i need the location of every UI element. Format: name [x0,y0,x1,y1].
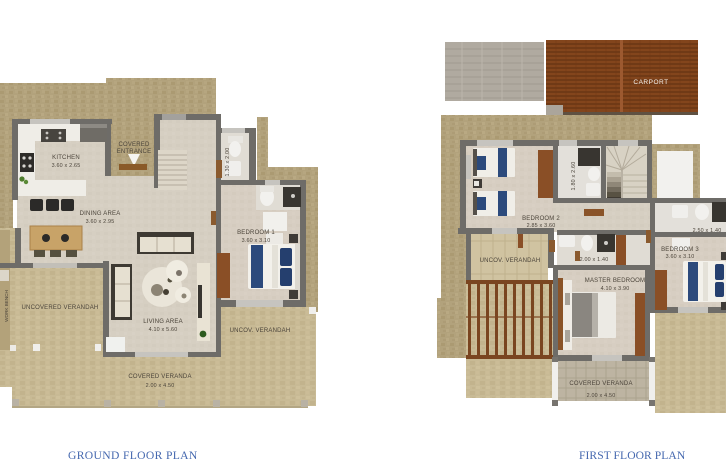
svg-text:3.60 x 3.10: 3.60 x 3.10 [242,238,271,244]
svg-text:1.30 x 2.00: 1.30 x 2.00 [225,148,231,177]
svg-text:COVERED: COVERED [118,142,150,148]
svg-text:2.50 x 1.40: 2.50 x 1.40 [693,228,722,234]
svg-text:2.00 x 4.50: 2.00 x 4.50 [146,383,175,389]
svg-text:LIVING AREA: LIVING AREA [143,319,183,325]
svg-text:COVERED VERANDA: COVERED VERANDA [128,374,191,380]
svg-text:COVERED VERANDA: COVERED VERANDA [569,381,632,387]
svg-text:2.00 x 4.50: 2.00 x 4.50 [587,393,616,399]
svg-text:BEDROOM 1: BEDROOM 1 [237,230,275,236]
svg-text:UNCOVERED VERANDAH: UNCOVERED VERANDAH [22,305,99,311]
svg-text:4.10 x 3.90: 4.10 x 3.90 [601,286,630,292]
svg-text:FIRST FLOOR PLAN: FIRST FLOOR PLAN [579,449,686,462]
svg-text:BEDROOM 2: BEDROOM 2 [522,216,560,222]
svg-text:DINING AREA: DINING AREA [80,211,121,217]
svg-text:3.60 x 2.95: 3.60 x 2.95 [86,219,115,225]
svg-text:WORK BENCH: WORK BENCH [4,290,9,322]
svg-text:3.60 x 2.65: 3.60 x 2.65 [52,163,81,169]
svg-text:1.80 x 2.60: 1.80 x 2.60 [571,162,577,191]
svg-text:MASTER BEDROOM: MASTER BEDROOM [585,278,645,284]
svg-text:UNCOV. VERANDAH: UNCOV. VERANDAH [230,328,291,334]
svg-text:GROUND FLOOR PLAN: GROUND FLOOR PLAN [68,449,198,462]
svg-text:4.10 x 5.60: 4.10 x 5.60 [149,327,178,333]
svg-text:2.85 x 3.60: 2.85 x 3.60 [527,223,556,229]
svg-text:CARPORT: CARPORT [633,79,668,86]
svg-text:ENTRANCE: ENTRANCE [117,149,152,155]
svg-text:BEDROOM 3: BEDROOM 3 [661,247,699,253]
svg-text:KITCHEN: KITCHEN [52,155,80,161]
svg-text:2.00 x 1.40: 2.00 x 1.40 [580,257,609,263]
svg-text:UNCOV. VERANDAH: UNCOV. VERANDAH [480,258,541,264]
svg-text:3.60 x 3.10: 3.60 x 3.10 [666,254,695,260]
